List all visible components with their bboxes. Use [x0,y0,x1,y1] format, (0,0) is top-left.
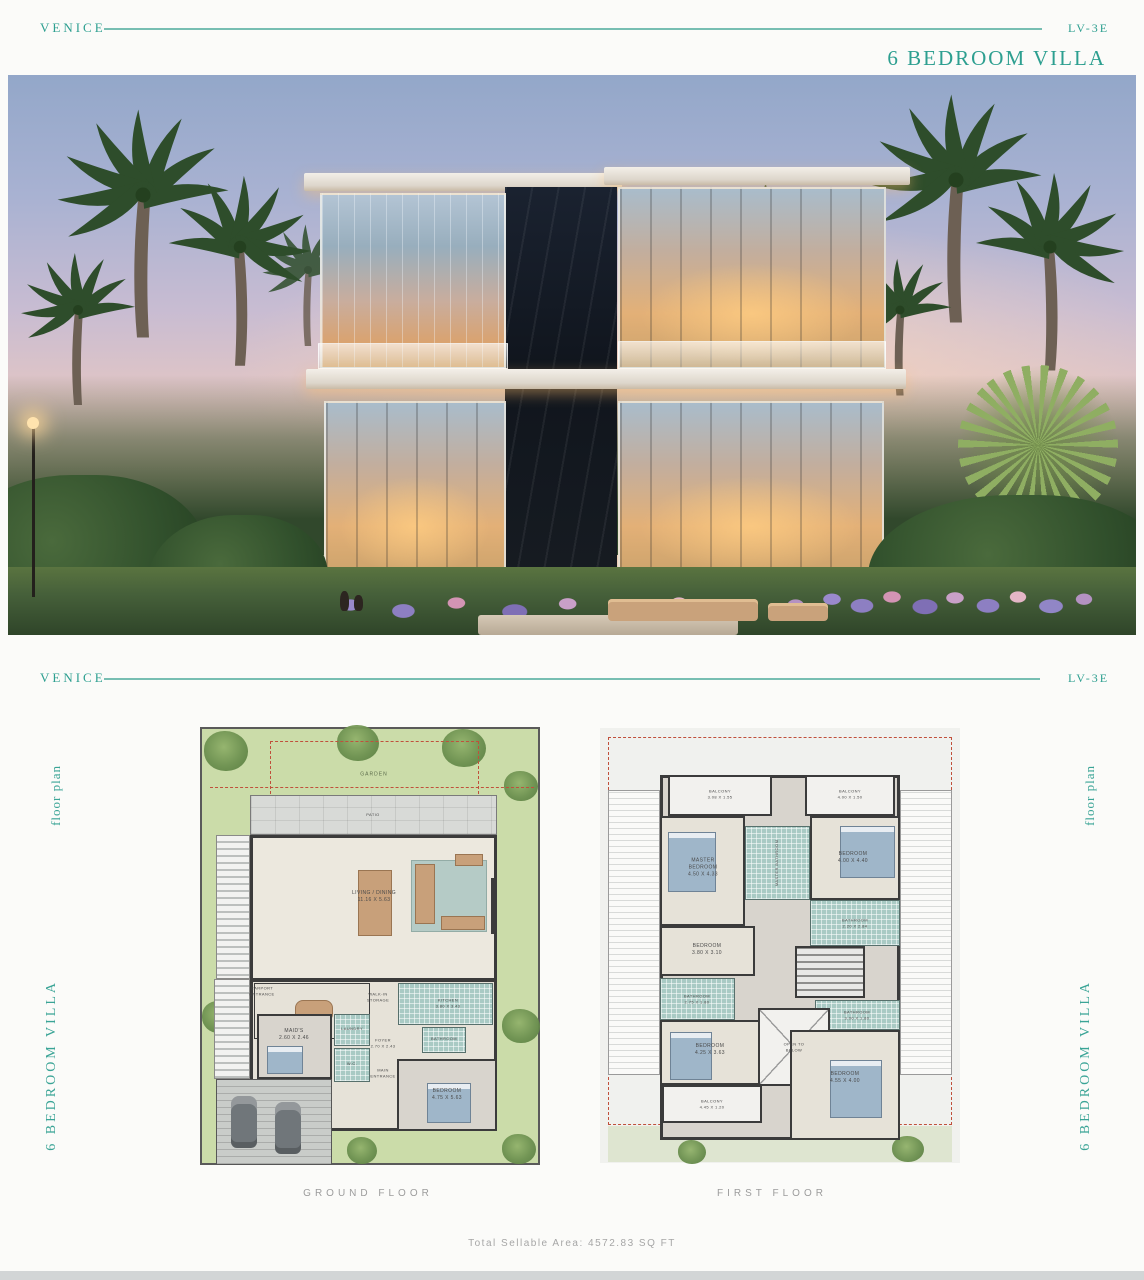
header-rule [104,28,1042,30]
outdoor-chair [768,603,828,621]
room-label-open-below: OPEN TO BELOW [784,1041,805,1052]
brand-name: VENICE [40,20,106,36]
room-label-laundry: LAUNDRY [341,1026,363,1032]
room-label-storage: WALK-IN STORAGE [367,991,389,1002]
side-label-floor-plan-right: floor plan [1082,765,1098,826]
room-label-patio: PATIO [366,812,379,818]
flower-bed-right [808,575,1108,619]
room-label-living-dining: LIVING / DINING 11.16 X 5.63 [352,890,396,904]
unit-code: LV-3E [1068,21,1109,36]
room-label-main-entrance: MAIN ENTRANCE [370,1067,395,1078]
bed-br [830,1060,882,1118]
maids-room [257,1014,332,1079]
roof-eave-right [900,790,952,1075]
garden-lamp-pole [32,427,35,597]
room-label-bedroom-bl: BEDROOM 4.25 X 3.63 [695,1043,725,1057]
room-label-bedroom-tr: BEDROOM 4.00 X 4.40 [838,851,868,865]
page-bottom-strip [0,1271,1144,1280]
mid-slab [306,369,906,389]
room-label-balcony-tr: BALCONY 4.00 X 1.50 [838,788,863,799]
tv-unit [491,878,495,934]
section-header-rule [104,678,1040,680]
roof-eave-left [608,790,660,1075]
room-label-balcony-b: BALCONY 4.45 X 1.20 [700,1098,725,1109]
tree-marker [678,1140,706,1164]
ground-floor-caption: GROUND FLOOR [303,1188,433,1199]
roof-slab-right [604,167,910,185]
side-stairs [216,835,250,979]
sofa-left [415,864,435,924]
room-label-foyer: FOYER 2.70 X 2.43 [371,1037,396,1048]
villa-photo [8,75,1136,635]
person-silhouette-2 [354,595,363,611]
side-label-villa-left: 6 BEDROOM VILLA [44,980,60,1151]
page-title: 6 BEDROOM VILLA [887,46,1106,71]
tree-marker [347,1137,377,1164]
section-unit-code: LV-3E [1068,671,1109,686]
tree-marker [502,1134,536,1164]
room-label-garden: GARDEN [360,772,387,779]
balcony-rail-left [318,343,508,369]
room-label-bathroom-l: BATHROOM 2.75 X 1.80 [684,993,710,1004]
room-label-bathroom-mr: BATHROOM 3.00 X 1.80 [844,1009,870,1020]
living-dining-room [250,835,497,981]
room-label-kitchen: KITCHEN 3.80 X 3.43 [436,997,461,1008]
brochure-page: VENICE LV-3E 6 BEDROOM VILLA [0,0,1144,1280]
first-floor-caption: FIRST FLOOR [717,1188,827,1199]
side-label-floor-plan-left: floor plan [48,765,64,826]
armchair [455,854,483,866]
room-label-bedroom-br: BEDROOM 4.55 X 4.00 [830,1071,860,1085]
lower-right-glass [618,401,884,581]
room-label-wc: W.C. [347,1061,357,1067]
first-floor-plan: BALCONY 3.08 X 1.55 BALCONY 4.00 X 1.50 … [600,728,960,1163]
garden-lamp-light [27,417,39,429]
tree-marker [502,1009,540,1043]
room-label-bathroom-gf: BATHROOM [431,1036,457,1042]
room-label-bedroom-ml: BEDROOM 3.80 X 3.10 [692,943,722,957]
ground-floor-plan: GARDEN PATIO LIVING / DINING 11.16 X 5.6… [200,727,540,1165]
room-label-bedroom-gf: BEDROOM 4.75 X 5.63 [432,1088,462,1102]
balcony-rail-right [618,341,886,369]
tree-marker [504,771,538,801]
section-brand-name: VENICE [40,670,106,686]
tree-marker [204,731,248,771]
person-silhouette [340,591,349,611]
flowers-2 [808,575,1108,619]
room-label-master-bathroom: MASTER BATHROOM [774,840,780,887]
staircase [795,946,865,998]
lower-left-glass [324,401,506,581]
room-label-carport-entrance: CARPORT ENTRANCE [249,985,274,996]
side-label-villa-right: 6 BEDROOM VILLA [1078,980,1094,1151]
marble-core [505,187,617,595]
room-label-master-bedroom: MASTER BEDROOM 4.50 X 4.33 [688,858,718,879]
total-sellable-area: Total Sellable Area: 4572.83 SQ FT [468,1238,676,1249]
sofa-bottom [441,916,485,930]
maids-bed [267,1046,303,1074]
room-label-maids: MAID'S 2.60 X 2.46 [279,1028,309,1042]
room-label-bathroom-r: BATHROOM 2.20 X 2.84 [842,917,868,928]
room-label-balcony-tl: BALCONY 3.08 X 1.55 [708,788,733,799]
outdoor-sofa [608,599,758,621]
side-path [214,979,250,1079]
carport [216,1079,332,1165]
bedroom-bottom-right [790,1030,900,1140]
setback-dashed-line-h [210,787,534,788]
car-shape [275,1102,301,1154]
car-shape [231,1096,257,1148]
